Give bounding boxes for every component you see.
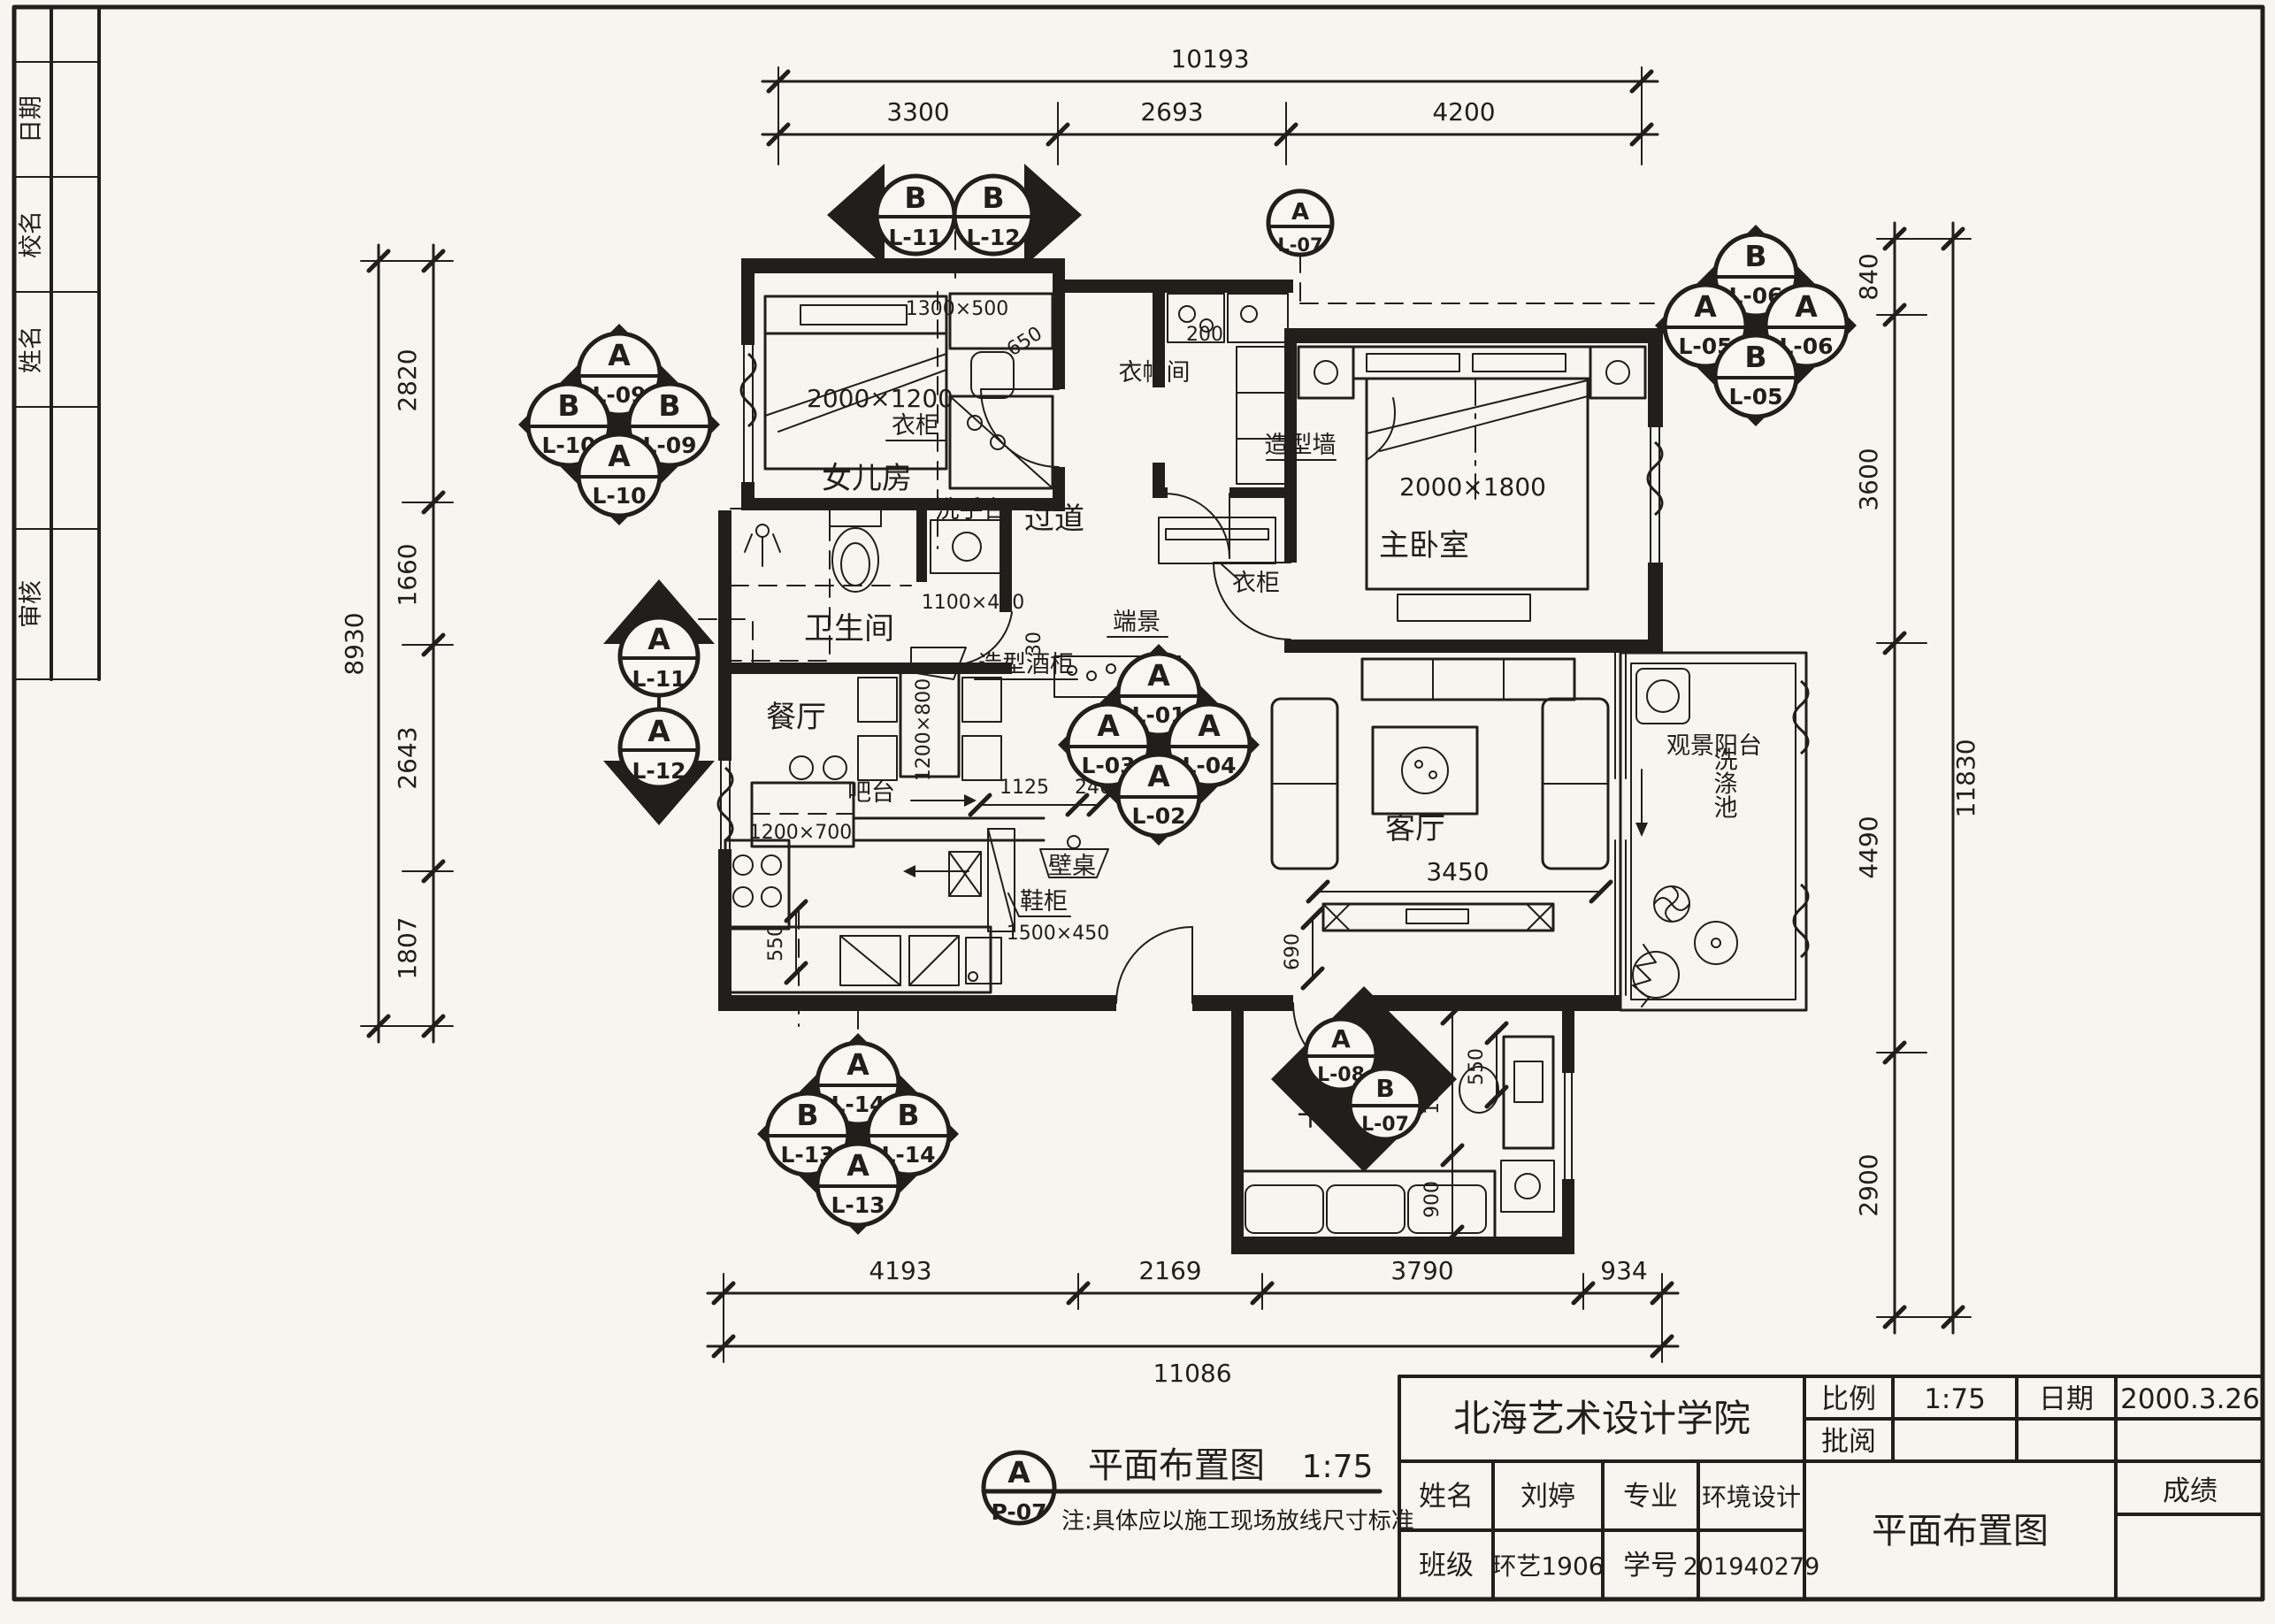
label-laundry: 洗涤池	[1710, 747, 1737, 818]
marker-diamond-bottomleft: A L-14 B L-13 B L-14 A L-13	[757, 1033, 959, 1235]
svg-text:A: A	[1147, 658, 1170, 693]
svg-text:L-11: L-11	[888, 225, 942, 250]
dim-top: 10193 3300 2693 4200	[762, 44, 1658, 165]
room-girl: 女儿房 2000×1200 1300×500 衣柜 650	[765, 294, 1059, 496]
label-bar: 吧台	[847, 779, 895, 807]
score-label: 成绩	[2163, 1475, 2218, 1507]
room-label-bath: 卫生间	[804, 611, 894, 647]
dim-top-overall: 10193	[1170, 44, 1249, 73]
svg-text:A: A	[1331, 1024, 1351, 1053]
dim-690: 690	[1282, 933, 1304, 970]
date-value: 2000.3.26	[2120, 1383, 2260, 1415]
room-label-dining: 餐厅	[766, 700, 826, 735]
scale-label: 比例	[1821, 1383, 1876, 1415]
marker-topcenter: B L-11 B L-12	[827, 164, 1082, 266]
major-value: 环境设计	[1702, 1482, 1801, 1512]
size-dining-table: 1200×800	[913, 678, 935, 781]
label-shoecab: 鞋柜	[1020, 888, 1068, 915]
dim-left-s4: 1807	[393, 916, 422, 979]
svg-text:L-02: L-02	[1131, 803, 1185, 829]
dim-top-s1: 3300	[886, 97, 949, 126]
size-master-bed: 2000×1800	[1399, 472, 1546, 502]
caption-symbol-bottom: P-07	[991, 1499, 1046, 1525]
svg-text:A: A	[647, 622, 670, 656]
marker-study: A L-08 B L-07	[1271, 986, 1457, 1172]
caption-scale: 1:75	[1302, 1449, 1374, 1485]
left-strip: 日期 校名 姓名 审核	[18, 96, 45, 628]
dim-bottom-overall: 11086	[1153, 1359, 1231, 1388]
room-living: 客厅 3450 690	[1272, 659, 1611, 988]
caption-symbol-top: A	[1007, 1455, 1030, 1490]
dim-left-s1: 2820	[393, 349, 422, 411]
floor-plan-sheet: 日期 校名 姓名 审核 女儿房 2000×1	[0, 0, 2275, 1624]
label-basin: 洗手台	[936, 496, 1007, 524]
room-dining-kitchen: 餐厅 1200×800 造型酒柜 1200×700 吧台 550	[725, 647, 1077, 1026]
class-value: 环艺1906	[1491, 1551, 1604, 1581]
caption-note: 注:具体应以施工现场放线尺寸标准	[1061, 1508, 1414, 1535]
dim-top-s3: 4200	[1432, 97, 1495, 126]
room-cloak: 衣帽间 200	[1119, 294, 1289, 558]
svg-text:A: A	[608, 439, 631, 473]
class-label: 班级	[1419, 1550, 1474, 1582]
dim-3450: 3450	[1426, 857, 1489, 886]
svg-text:A: A	[1147, 759, 1170, 793]
size-shoecab: 1500×450	[1007, 923, 1109, 945]
dim-550-study: 550	[1466, 1048, 1488, 1085]
marker-diamond-topright: B L-06 A L-05 A L-06 B L-05	[1655, 225, 1857, 426]
dim-bottom-s3: 3790	[1390, 1256, 1453, 1285]
svg-text:A: A	[846, 1148, 869, 1183]
svg-text:L-05: L-05	[1728, 384, 1782, 410]
dim-left: 2820 1660 2643 1807 8930	[340, 245, 453, 1042]
date-label: 日期	[2039, 1383, 2094, 1415]
room-label-girl: 女儿房	[822, 461, 912, 496]
strip-label-school: 校名	[18, 211, 45, 258]
svg-text:A: A	[1694, 289, 1717, 324]
strip-label-review: 审核	[18, 580, 45, 628]
caption: A P-07 平面布置图 1:75 注:具体应以施工现场放线尺寸标准	[984, 1445, 1414, 1535]
svg-text:B: B	[1744, 340, 1766, 374]
dim-right-s2: 3600	[1854, 448, 1883, 510]
label-wardrobe-girl: 衣柜	[892, 412, 939, 440]
svg-text:L-10: L-10	[592, 483, 646, 509]
marker-leftmid: A L-11 A L-12	[603, 579, 715, 825]
strip-label-date: 日期	[18, 96, 45, 143]
size-basin: 1100×450	[922, 592, 1024, 614]
room-label-cloak: 衣帽间	[1119, 359, 1191, 387]
svg-text:A: A	[1198, 709, 1221, 743]
school-name: 北海艺术设计学院	[1453, 1397, 1750, 1440]
dim-left-overall: 8930	[340, 612, 369, 675]
title-block: 北海艺术设计学院 姓名 刘婷 专业 环境设计 班级 环艺1906 学号 2019…	[1399, 1376, 2263, 1599]
label-walltable: 壁桌	[1048, 853, 1096, 880]
dim-bottom-s1: 4193	[869, 1256, 931, 1285]
svg-text:A: A	[647, 714, 670, 748]
dim-550-kitchen: 550	[765, 924, 787, 961]
dim-left-s3: 2643	[393, 726, 422, 789]
label-wine-cabinet: 造型酒柜	[978, 651, 1074, 678]
name-label: 姓名	[1419, 1481, 1474, 1513]
strip-label-name: 姓名	[18, 326, 45, 373]
svg-text:A: A	[1795, 289, 1818, 324]
dim-bottom-s2: 2169	[1138, 1256, 1201, 1285]
caption-title: 平面布置图	[1088, 1445, 1265, 1486]
marker-diamond-topleft: A L-09 B L-10 B L-09 A L-10	[518, 324, 720, 525]
svg-text:A: A	[1097, 709, 1120, 743]
svg-text:L-07: L-07	[1277, 234, 1322, 256]
svg-text:A: A	[608, 338, 631, 372]
student-id-value: 201940279	[1683, 1553, 1820, 1581]
scale-value: 1:75	[1924, 1383, 1986, 1415]
room-label-hall: 过道	[1024, 502, 1084, 537]
dim-right: 840 3600 4490 2900 11830	[1854, 223, 1980, 1333]
dim-left-s2: 1660	[393, 543, 422, 606]
svg-text:L-11: L-11	[632, 666, 686, 692]
svg-text:B: B	[1744, 239, 1766, 273]
svg-text:L-12: L-12	[632, 758, 686, 784]
svg-text:L-07: L-07	[1361, 1114, 1409, 1136]
svg-text:A: A	[846, 1047, 869, 1082]
dim-right-overall: 11830	[1951, 739, 1980, 817]
room-label-living: 客厅	[1385, 811, 1445, 846]
dim-200: 200	[1186, 324, 1223, 346]
dim-right-s1: 840	[1854, 253, 1883, 300]
dim-1125: 1125	[1000, 777, 1049, 799]
dim-900: 900	[1421, 1181, 1444, 1218]
label-endview: 端景	[1113, 609, 1160, 636]
dim-top-s2: 2693	[1140, 97, 1203, 126]
svg-text:B: B	[658, 388, 680, 423]
drawing-title: 平面布置图	[1872, 1511, 2049, 1551]
name-value: 刘婷	[1520, 1481, 1575, 1513]
svg-text:B: B	[897, 1098, 919, 1132]
review-label: 批阅	[1821, 1426, 1876, 1458]
svg-text:B: B	[982, 180, 1004, 215]
label-wardrobe-hall: 衣柜	[1232, 570, 1280, 597]
svg-text:A: A	[1291, 199, 1309, 226]
svg-text:B: B	[796, 1098, 818, 1132]
room-label-master: 主卧室	[1379, 528, 1469, 563]
room-bath: 卫生间 洗手台 1100×450	[731, 496, 1024, 665]
label-feature-wall: 造型墙	[1265, 432, 1337, 459]
room-balcony: 观景阳台 洗涤池	[1615, 653, 1808, 1010]
size-girl-bed: 2000×1200	[807, 384, 954, 413]
svg-text:B: B	[557, 388, 579, 423]
svg-text:L-13: L-13	[831, 1192, 885, 1218]
drawing-sheet: 日期 校名 姓名 审核 女儿房 2000×1	[0, 0, 2275, 1624]
dim-right-s3: 4490	[1854, 816, 1883, 878]
marker-elevation-top: A L-07	[1268, 191, 1332, 256]
svg-text:B: B	[1375, 1074, 1394, 1103]
svg-text:B: B	[904, 180, 926, 215]
dim-bottom-s4: 934	[1600, 1256, 1647, 1285]
dim-right-s4: 2900	[1854, 1153, 1883, 1216]
dim-bottom: 4193 2169 3790 934 11086	[708, 1256, 1678, 1388]
size-girl-cab: 1300×500	[906, 298, 1008, 320]
svg-text:L-12: L-12	[966, 225, 1020, 250]
student-id-label: 学号	[1623, 1550, 1678, 1582]
major-label: 专业	[1623, 1481, 1678, 1513]
